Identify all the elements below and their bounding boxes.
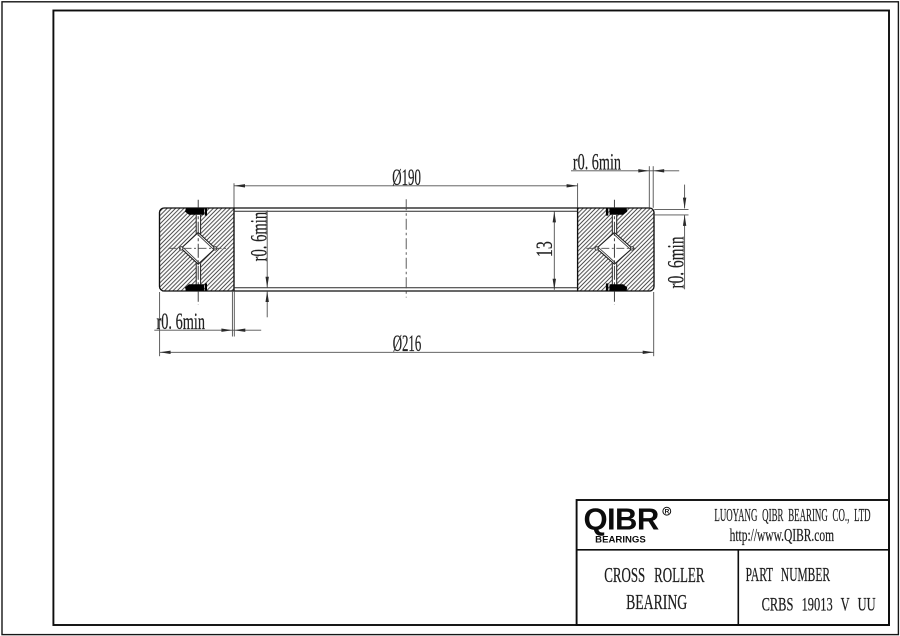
svg-text:Ø216: Ø216 [393, 331, 422, 356]
svg-text:PART NUMBER: PART NUMBER [746, 564, 831, 586]
svg-text:Ø190: Ø190 [392, 165, 421, 190]
svg-text:r0. 6min: r0. 6min [573, 150, 621, 175]
svg-text:LUOYANG QIBR BEARING CO., LTD: LUOYANG QIBR BEARING CO., LTD [714, 505, 870, 525]
svg-text:CROSS ROLLER: CROSS ROLLER [604, 565, 704, 587]
svg-text:r0. 6min: r0. 6min [664, 236, 689, 288]
svg-text:BEARING: BEARING [626, 592, 687, 614]
svg-text:r0. 6min: r0. 6min [247, 211, 272, 261]
svg-text:R: R [665, 509, 670, 516]
svg-text:BEARINGS: BEARINGS [595, 535, 646, 545]
svg-text:http://www.QIBR.com: http://www.QIBR.com [730, 525, 835, 545]
svg-text:13: 13 [532, 241, 557, 257]
svg-text:CRBS 19013 V UU: CRBS 19013 V UU [762, 595, 876, 616]
svg-text:QIBR: QIBR [584, 502, 659, 537]
svg-text:r0. 6min: r0. 6min [157, 309, 206, 334]
